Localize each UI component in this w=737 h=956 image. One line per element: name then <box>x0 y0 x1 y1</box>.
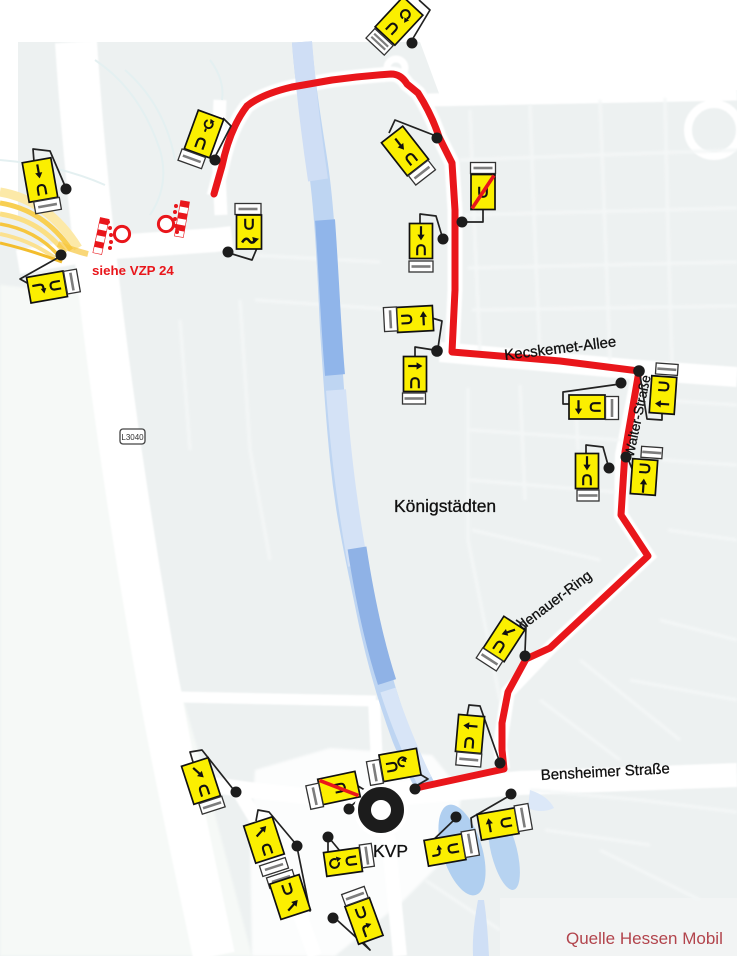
svg-text:siehe VZP 24: siehe VZP 24 <box>92 263 174 278</box>
svg-text:Quelle Hessen Mobil: Quelle Hessen Mobil <box>566 929 723 948</box>
svg-text:KVP: KVP <box>373 841 408 861</box>
svg-text:Königstädten: Königstädten <box>394 496 496 516</box>
svg-text:L3040: L3040 <box>121 433 144 442</box>
